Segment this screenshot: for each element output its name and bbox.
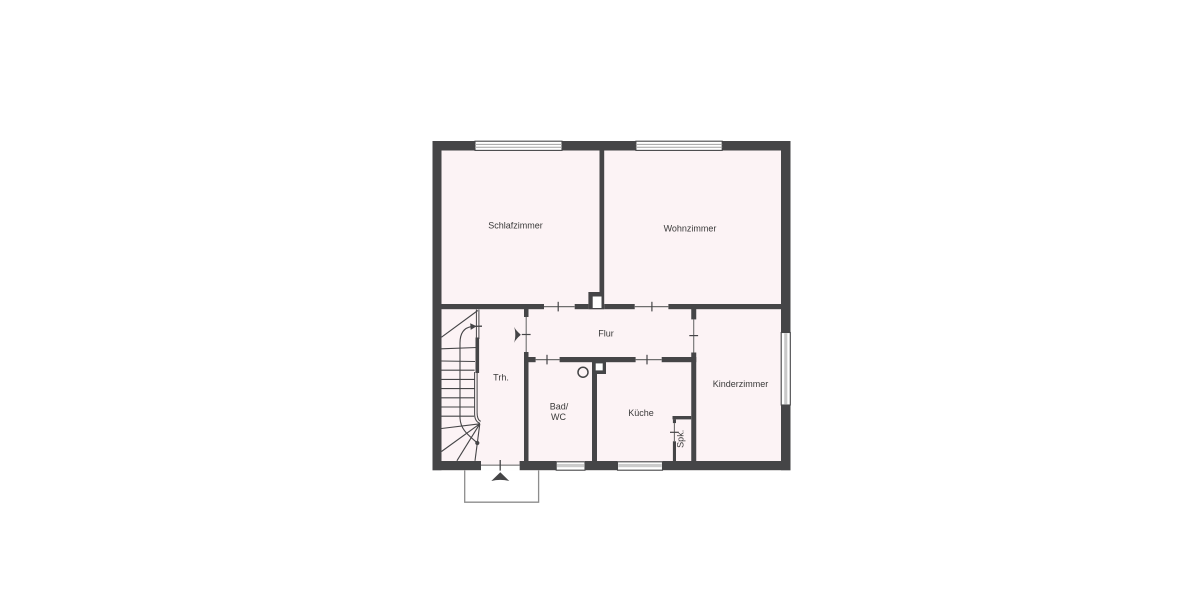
- svg-text:Wohnzimmer: Wohnzimmer: [664, 224, 717, 234]
- svg-text:Trh.: Trh.: [493, 373, 509, 383]
- svg-text:Bad/: Bad/: [550, 402, 569, 412]
- svg-text:Spk.: Spk.: [675, 430, 685, 448]
- svg-text:Küche: Küche: [628, 408, 654, 418]
- svg-text:Kinderzimmer: Kinderzimmer: [713, 379, 769, 389]
- svg-text:Schlafzimmer: Schlafzimmer: [488, 221, 543, 231]
- svg-text:Flur: Flur: [598, 328, 614, 338]
- svg-text:WC: WC: [551, 412, 566, 422]
